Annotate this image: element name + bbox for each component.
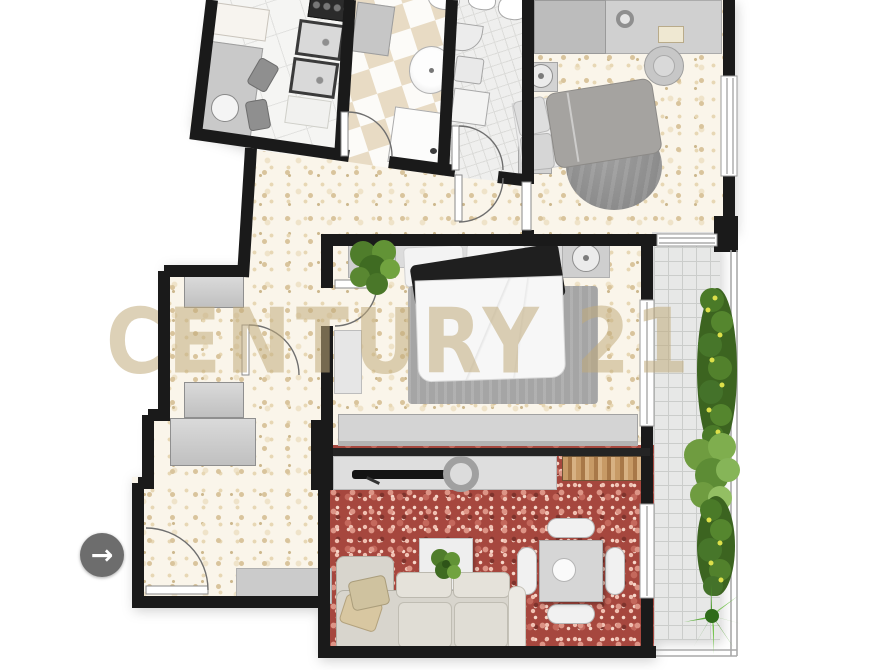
dining-plate xyxy=(552,558,576,582)
sofa-back-cushion-2 xyxy=(453,572,510,598)
floor-plan: CENTURY 21 → xyxy=(0,0,893,670)
sofa-back-cushion-1 xyxy=(396,572,452,598)
bedroom2-desk-chair-seat xyxy=(653,55,675,77)
bathroom1-cabinet xyxy=(351,2,396,57)
bedroom2-lamp-1 xyxy=(529,64,553,88)
dining-chair-bottom xyxy=(547,604,595,624)
bathroom2-shower xyxy=(450,88,490,127)
sofa-seat-cushion-1 xyxy=(398,602,452,648)
kitchen-counter-2 xyxy=(284,95,331,129)
master-lamp-1 xyxy=(358,244,386,272)
bedroom2-dresser xyxy=(534,0,606,54)
bathroom2-bidet-2 xyxy=(453,55,484,85)
kitchen-sink-2 xyxy=(289,57,340,99)
bedroom2-pillow-2 xyxy=(520,132,556,171)
master-lamp-2 xyxy=(572,244,600,272)
entrance-arrow-icon[interactable]: → xyxy=(80,533,124,577)
sofa-armrest xyxy=(508,586,526,652)
bedroom2-vase xyxy=(616,10,634,28)
dining-chair-top xyxy=(547,518,595,538)
bathroom1-sink-drain xyxy=(429,68,434,73)
bathroom1-shower-drain xyxy=(430,148,437,154)
sofa-seat-cushion-2 xyxy=(454,602,508,648)
wood-bench xyxy=(562,456,642,481)
decor-bowl xyxy=(443,456,479,492)
bathroom1-shower xyxy=(387,106,450,169)
dining-chair-right xyxy=(605,547,625,595)
century21-watermark: CENTURY 21 xyxy=(106,297,694,387)
hall-closet-3 xyxy=(170,418,256,466)
kitchen-sink-1 xyxy=(295,19,346,61)
bedroom2-book xyxy=(658,26,684,43)
master-wardrobe xyxy=(338,414,638,446)
entrance-mat xyxy=(236,568,332,604)
